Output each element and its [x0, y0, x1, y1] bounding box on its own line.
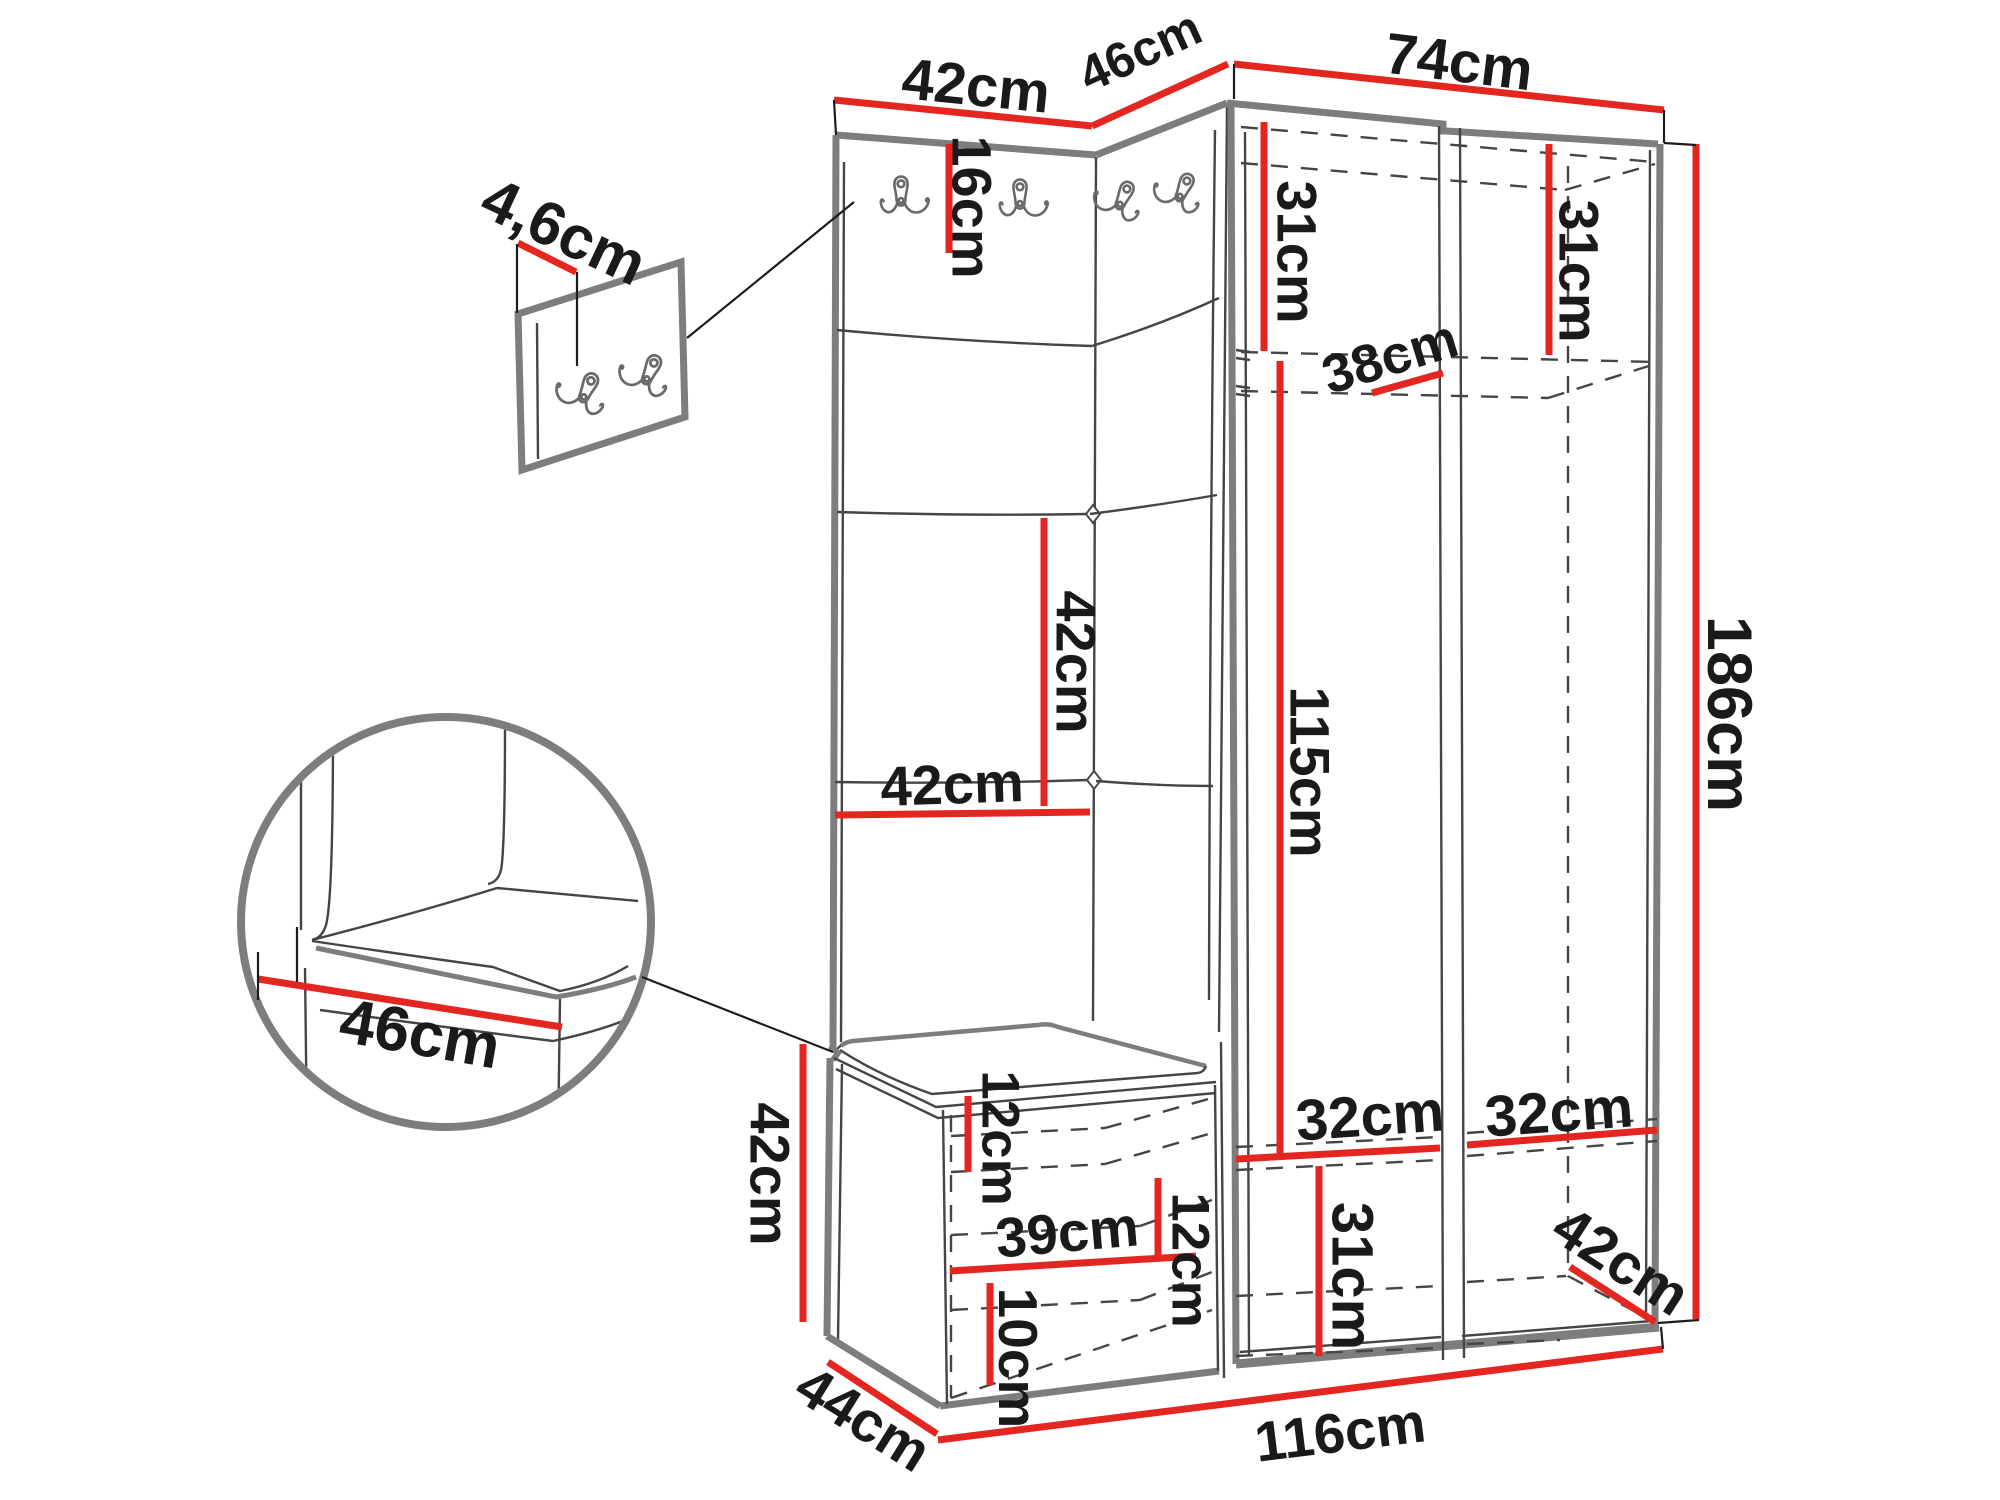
svg-text:42cm: 42cm: [739, 1102, 802, 1245]
svg-text:10cm: 10cm: [987, 1288, 1049, 1429]
svg-text:42cm: 42cm: [1045, 590, 1108, 733]
svg-text:31cm: 31cm: [1266, 180, 1329, 323]
svg-text:39cm: 39cm: [993, 1194, 1141, 1269]
svg-text:16cm: 16cm: [941, 135, 1004, 278]
svg-text:42cm: 42cm: [879, 750, 1024, 818]
svg-text:12cm: 12cm: [1161, 1192, 1220, 1328]
svg-text:115cm: 115cm: [1279, 686, 1342, 857]
svg-text:32cm: 32cm: [1294, 1078, 1447, 1153]
svg-text:12cm: 12cm: [971, 1070, 1030, 1206]
svg-text:31cm: 31cm: [1548, 199, 1611, 342]
svg-text:186cm: 186cm: [1694, 616, 1764, 812]
svg-text:32cm: 32cm: [1483, 1074, 1636, 1149]
svg-text:31cm: 31cm: [1320, 1202, 1385, 1350]
